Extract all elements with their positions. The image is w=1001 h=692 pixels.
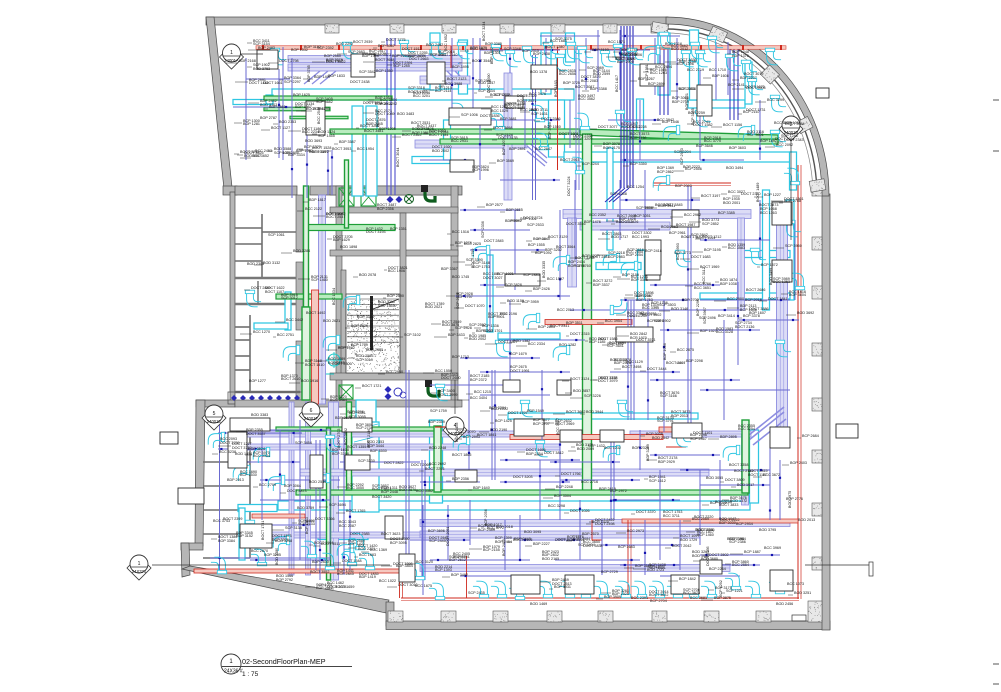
svg-text:BOD 2305: BOD 2305 [247,262,264,266]
svg-text:BOCT 1969: BOCT 1969 [700,265,719,269]
svg-text:SCP 3791: SCP 3791 [657,419,674,423]
svg-text:BDP 2830: BDP 2830 [312,560,329,564]
svg-text:BOD 1898: BOD 1898 [340,245,357,249]
svg-text:BOD 2975: BOD 2975 [788,491,792,508]
svg-text:BOP 2403: BOP 2403 [790,461,807,465]
svg-text:BDP 3854: BDP 3854 [396,564,413,568]
svg-text:BOP 2054: BOP 2054 [626,253,643,257]
svg-text:BDP 2570: BDP 2570 [582,532,599,536]
svg-text:BCP 3414: BCP 3414 [718,314,735,318]
svg-text:DOCT 2228: DOCT 2228 [627,125,647,129]
svg-text:24001F: 24001F [304,416,319,421]
svg-text:SCP 2533: SCP 2533 [527,223,544,227]
svg-text:BOD 3344: BOD 3344 [567,538,584,542]
svg-text:BCP 2707: BCP 2707 [533,422,550,426]
svg-text:SCP 2838: SCP 2838 [636,206,653,210]
svg-text:BCC 3651: BCC 3651 [694,286,711,290]
svg-text:DOCT 3809: DOCT 3809 [725,478,745,482]
svg-text:SCP 1321: SCP 1321 [649,566,666,570]
svg-text:DOCT 3715: DOCT 3715 [232,446,252,450]
svg-text:DOCT 3203: DOCT 3203 [513,475,533,479]
svg-text:BOP 2792: BOP 2792 [276,578,293,582]
svg-text:BOD 3146: BOD 3146 [671,307,688,311]
svg-text:BOP 2159: BOP 2159 [622,273,639,277]
svg-text:SCP 2496: SCP 2496 [699,316,716,320]
svg-text:SCP 2983: SCP 2983 [608,255,625,259]
svg-text:DOCT 3873: DOCT 3873 [287,489,307,493]
svg-text:BOP 2296: BOP 2296 [696,299,700,316]
svg-text:BCP 2972: BCP 2972 [610,489,627,493]
svg-text:BCP 1351: BCP 1351 [390,227,407,231]
svg-text:BCC 2316: BCC 2316 [665,42,682,46]
svg-text:BCC 2352: BCC 2352 [589,213,606,217]
svg-text:BOCT 2408: BOCT 2408 [455,423,459,442]
svg-text:BDP 3030: BDP 3030 [719,521,736,525]
svg-text:BCC 1906: BCC 1906 [388,269,405,273]
svg-text:DOCT 3537: DOCT 3537 [246,432,266,436]
svg-text:BCC 2847: BCC 2847 [535,147,552,151]
svg-text:BDP 1375: BDP 1375 [732,54,749,58]
svg-text:BCC 3201: BCC 3201 [413,94,430,98]
svg-text:BCP 2890: BCP 2890 [648,82,665,86]
svg-text:BDP 1817: BDP 1817 [309,198,326,202]
svg-text:BOCT 3873: BOCT 3873 [759,203,778,207]
svg-text:DOCT 3370: DOCT 3370 [636,510,656,514]
svg-text:BOD 1282: BOD 1282 [559,343,576,347]
svg-text:BOCT 2703: BOCT 2703 [337,429,341,448]
svg-text:DOCT 1414: DOCT 1414 [249,81,269,85]
svg-text:DOCT 2586: DOCT 2586 [541,117,561,121]
svg-text:BDP 1038: BDP 1038 [720,282,737,286]
svg-text:BCP 2418: BCP 2418 [645,249,662,253]
svg-text:BCP 2018: BCP 2018 [496,525,513,529]
svg-text:BDP 3655: BDP 3655 [506,208,523,212]
svg-text:DOCT 1673: DOCT 1673 [745,85,765,89]
svg-text:BOD 2353: BOD 2353 [279,120,296,124]
svg-text:BOCT 2903: BOCT 2903 [560,158,579,162]
svg-text:BOCT 3358: BOCT 3358 [729,463,748,467]
svg-text:BOD 2599: BOD 2599 [593,72,610,76]
svg-text:BCP 1092: BCP 1092 [535,251,552,255]
svg-text:BCP 3681: BCP 3681 [500,117,517,121]
svg-text:6: 6 [310,408,313,414]
svg-text:BOCT 2686: BOCT 2686 [746,288,765,292]
svg-text:BOCT 2939: BOCT 2939 [353,40,372,44]
svg-text:SCP 2435: SCP 2435 [468,591,485,595]
svg-text:BOP 3840: BOP 3840 [533,237,550,241]
svg-text:DOCT 3166: DOCT 3166 [706,546,710,566]
svg-text:BDP 2295: BDP 2295 [392,54,409,58]
svg-text:BOP 2483: BOP 2483 [258,46,275,50]
svg-text:DOCT 2309: DOCT 2309 [332,362,352,366]
svg-text:BDP 3433: BDP 3433 [448,333,465,337]
svg-text:BCC 1263: BCC 1263 [650,71,667,75]
svg-text:SCP 1061: SCP 1061 [268,233,285,237]
svg-text:BDP 3388: BDP 3388 [590,87,607,91]
svg-text:1: 1 [229,659,233,665]
svg-text:BCC 2900: BCC 2900 [727,297,744,301]
svg-text:BDP 1527: BDP 1527 [700,329,717,333]
svg-text:BDP 1467: BDP 1467 [490,47,494,64]
svg-text:SCP 1612: SCP 1612 [649,479,666,483]
svg-text:SCP 2734: SCP 2734 [356,426,373,430]
svg-text:BOCT 1721: BOCT 1721 [362,384,381,388]
svg-text:BCP 3385: BCP 3385 [718,211,735,215]
svg-text:BCC 1163: BCC 1163 [760,211,777,215]
svg-text:BOP 3511: BOP 3511 [566,321,583,325]
svg-text:BCC 1993: BCC 1993 [632,235,649,239]
svg-text:BCC 3404: BCC 3404 [470,396,487,400]
svg-text:DOCT 3571: DOCT 3571 [636,338,656,342]
svg-text:BOP 2356: BOP 2356 [452,477,469,481]
svg-text:BCC 2391: BCC 2391 [631,596,648,600]
svg-text:SCP 2852: SCP 2852 [702,222,719,226]
svg-text:BOD 3494: BOD 3494 [726,166,743,170]
svg-text:DOCT 2343: DOCT 2343 [784,138,804,142]
svg-text:BDP 1967: BDP 1967 [295,105,312,109]
svg-text:BOCT 3698: BOCT 3698 [493,126,512,130]
svg-text:BDP 2093: BDP 2093 [675,184,692,188]
svg-text:SCP 2445: SCP 2445 [429,539,446,543]
svg-text:BOD 2292: BOD 2292 [336,42,353,46]
svg-text:BCC 3254: BCC 3254 [738,427,755,431]
svg-text:DOCT 3010: DOCT 3010 [398,583,418,587]
svg-text:BOCT 3548: BOCT 3548 [472,59,491,63]
svg-text:SCP 2336: SCP 2336 [481,221,485,238]
svg-text:BOCT 3318: BOCT 3318 [575,256,594,260]
svg-text:DOCT 3077: DOCT 3077 [598,125,618,129]
svg-text:BCC 3050: BCC 3050 [347,486,364,490]
svg-text:BCC 1254: BCC 1254 [627,185,644,189]
svg-text:BCC 2694: BCC 2694 [655,65,672,69]
svg-text:BCC 1270: BCC 1270 [253,330,270,334]
svg-text:BCP 3095: BCP 3095 [390,541,407,545]
svg-text:BCP 2684: BCP 2684 [802,434,819,438]
svg-text:DOCT 2315: DOCT 2315 [570,332,590,336]
svg-text:BCC 2417: BCC 2417 [326,59,343,63]
svg-text:SCP 3296: SCP 3296 [347,410,364,414]
svg-text:BOP 3569: BOP 3569 [497,159,514,163]
svg-text:BCP 2155: BCP 2155 [483,548,500,552]
svg-text:BCP 3367: BCP 3367 [378,44,395,48]
svg-text:BOD 1729: BOD 1729 [680,538,697,542]
svg-text:BCC 1534: BCC 1534 [332,288,336,305]
svg-text:DOCT 2650: DOCT 2650 [441,376,461,380]
svg-text:DOCT 2438: DOCT 2438 [350,80,370,84]
svg-text:BCC 1073: BCC 1073 [787,582,804,586]
svg-text:BOP 2803: BOP 2803 [538,325,555,329]
svg-text:BCP 3959: BCP 3959 [522,300,539,304]
svg-text:BOD 2222: BOD 2222 [491,407,508,411]
svg-text:BCP 2356: BCP 2356 [377,207,394,211]
svg-text:BOCT 3999: BOCT 3999 [438,393,457,397]
svg-text:BOCT 2220: BOCT 2220 [694,515,713,519]
svg-text:BOCT 1355: BOCT 1355 [347,445,366,449]
svg-text:SCP 1334: SCP 1334 [478,89,495,93]
svg-text:BCC 1710: BCC 1710 [709,68,726,72]
svg-text:DOCT 1797: DOCT 1797 [508,411,528,415]
svg-text:SCP 3828: SCP 3828 [505,283,522,287]
svg-text:BCC 3682: BCC 3682 [344,428,348,445]
svg-text:BDP 3700: BDP 3700 [476,329,493,333]
svg-text:SCP 1285: SCP 1285 [393,64,410,68]
svg-text:BCC 1369: BCC 1369 [370,548,387,552]
svg-text:SCP 1460: SCP 1460 [311,278,328,282]
svg-text:SCP 2801: SCP 2801 [430,53,447,57]
svg-text:BOP 3064: BOP 3064 [284,484,301,488]
svg-text:BOP 1277: BOP 1277 [249,379,266,383]
svg-text:BCP 1550: BCP 1550 [544,125,561,129]
svg-text:BOP 2175: BOP 2175 [603,146,620,150]
svg-text:BDP 3251: BDP 3251 [640,312,657,316]
svg-text:1 : 75: 1 : 75 [242,671,259,678]
svg-text:BCP 2934: BCP 2934 [736,522,753,526]
svg-text:DOCT 3838: DOCT 3838 [583,544,603,548]
svg-text:SCP 2297: SCP 2297 [284,80,301,84]
svg-text:BCC 2973: BCC 2973 [627,529,644,533]
svg-text:BCC 2122: BCC 2122 [305,207,322,211]
svg-text:BCP 3768: BCP 3768 [332,452,349,456]
svg-text:BOD 2536: BOD 2536 [309,480,326,484]
svg-text:BCC 2171: BCC 2171 [375,109,392,113]
svg-text:BOCT 1280: BOCT 1280 [545,45,564,49]
svg-text:BOP 3285: BOP 3285 [715,500,732,504]
svg-text:BDP 1549: BDP 1549 [527,409,544,413]
svg-text:BDP 3530: BDP 3530 [370,449,387,453]
svg-text:BOCT 1312: BOCT 1312 [490,93,509,97]
svg-text:SCP 1381: SCP 1381 [645,64,649,81]
svg-text:BOD 3132: BOD 3132 [263,261,280,265]
svg-text:DOCT 2513: DOCT 2513 [552,582,572,586]
svg-text:SCP 1631: SCP 1631 [531,112,548,116]
svg-text:24001E: 24001E [207,419,222,424]
svg-text:BOP 1546: BOP 1546 [662,120,679,124]
svg-text:SCP 2124: SCP 2124 [496,133,513,137]
svg-text:BCP 1425: BCP 1425 [495,419,512,423]
svg-text:SCP 3967: SCP 3967 [703,307,707,324]
svg-text:BDP 2799: BDP 2799 [672,100,689,104]
svg-text:BOCT 2761: BOCT 2761 [734,469,753,473]
svg-text:BCC 3298: BCC 3298 [548,504,565,508]
svg-text:BDP 2354: BDP 2354 [526,452,543,456]
svg-text:BCP 1021: BCP 1021 [497,272,514,276]
svg-text:BCC 2554: BCC 2554 [732,563,749,567]
svg-text:24X36 #: 24X36 # [224,669,243,675]
svg-text:BDP 3678: BDP 3678 [335,416,352,420]
svg-text:BOCT 1156: BOCT 1156 [723,123,742,127]
svg-text:24X371: 24X371 [132,569,147,574]
svg-text:BDP 1497: BDP 1497 [314,75,331,79]
svg-text:BCC 1417: BCC 1417 [615,75,619,92]
svg-text:BCC 2196: BCC 2196 [500,312,517,316]
svg-text:BOP 2590: BOP 2590 [387,294,404,298]
svg-text:BCC 3673: BCC 3673 [683,591,700,595]
svg-text:SCP 3348: SCP 3348 [504,47,521,51]
svg-text:BDP 1301: BDP 1301 [484,51,501,55]
svg-text:BCP 3696: BCP 3696 [428,529,445,533]
svg-text:SCP 3012: SCP 3012 [281,296,298,300]
svg-text:BOCT 2969: BOCT 2969 [555,422,574,426]
svg-text:BCC 3856: BCC 3856 [679,87,696,91]
svg-text:SCP 1759: SCP 1759 [430,409,447,413]
svg-text:BDP 3785: BDP 3785 [307,65,311,82]
svg-text:BOP 2612: BOP 2612 [449,558,466,562]
svg-text:BOCT 3197: BOCT 3197 [701,194,720,198]
svg-text:DOCT 1548: DOCT 1548 [342,559,362,563]
svg-text:SCP 1432: SCP 1432 [588,444,605,448]
svg-text:BDP 1576: BDP 1576 [455,241,472,245]
svg-text:BCP 3350: BCP 3350 [630,162,647,166]
svg-text:BOCT 2123: BOCT 2123 [447,77,466,81]
svg-text:BOD 2198: BOD 2198 [727,537,744,541]
svg-text:BCP 1530: BCP 1530 [240,473,257,477]
svg-text:BCC 3583: BCC 3583 [728,246,745,250]
svg-text:SCP 3950: SCP 3950 [785,244,802,248]
svg-text:SCP 1753: SCP 1753 [473,265,490,269]
svg-text:BOCT 3234: BOCT 3234 [506,106,525,110]
svg-text:SCP 3138: SCP 3138 [285,526,302,530]
svg-text:BOD 3944: BOD 3944 [586,410,603,414]
svg-text:BCP 2141: BCP 2141 [728,83,745,87]
svg-text:SCP 3503: SCP 3503 [659,303,676,307]
svg-text:BCC 3120: BCC 3120 [416,560,433,564]
svg-text:BCC 1952: BCC 1952 [444,34,448,51]
svg-text:BOP 3504: BOP 3504 [554,494,571,498]
svg-text:BDP 3537: BDP 3537 [593,283,610,287]
svg-text:DOCT 1841: DOCT 1841 [768,297,788,301]
svg-text:BOD 2248: BOD 2248 [429,446,446,450]
svg-text:BCC 3128: BCC 3128 [716,330,733,334]
svg-text:DOCT 3366: DOCT 3366 [315,517,335,521]
svg-text:BOD 1469: BOD 1469 [530,602,547,606]
svg-text:BOCT 1127: BOCT 1127 [271,126,290,130]
svg-text:BOD 3284: BOD 3284 [293,249,310,253]
svg-text:BCP 3495: BCP 3495 [452,65,469,69]
svg-text:BCC 1022: BCC 1022 [379,579,396,583]
svg-text:BOP 2914: BOP 2914 [375,102,392,106]
svg-text:BOD 2078: BOD 2078 [359,273,376,277]
svg-text:BCC 2092: BCC 2092 [776,143,793,147]
svg-text:SCP 2358: SCP 2358 [610,192,627,196]
svg-text:SCP 3542: SCP 3542 [359,70,376,74]
svg-text:DOCT 2585: DOCT 2585 [350,532,370,536]
svg-text:5: 5 [213,411,216,417]
svg-text:BOD 2857: BOD 2857 [573,389,590,393]
svg-text:SCP 3001: SCP 3001 [747,133,764,137]
svg-text:BOP 1295: BOP 1295 [313,107,330,111]
svg-text:BOCT 3622: BOCT 3622 [649,593,668,597]
svg-text:DOCT 2340: DOCT 2340 [741,192,761,196]
svg-text:DOCT 3193: DOCT 3193 [366,230,386,234]
svg-text:BOCT 3124: BOCT 3124 [570,377,589,381]
svg-text:DOCT 3027: DOCT 3027 [483,276,503,280]
svg-text:BOP 2438: BOP 2438 [533,52,550,56]
svg-text:BDP 2227: BDP 2227 [533,542,550,546]
svg-text:BOP 2448: BOP 2448 [381,490,398,494]
svg-text:BCC 3113: BCC 3113 [616,220,633,224]
svg-text:BOCT 1865: BOCT 1865 [452,453,471,457]
svg-text:DOCT 1582: DOCT 1582 [693,123,713,127]
svg-text:BDP 2900: BDP 2900 [617,60,634,64]
svg-text:BCP 1683: BCP 1683 [618,545,635,549]
svg-text:BDP 1608: BDP 1608 [712,74,729,78]
svg-text:DOCT 1586: DOCT 1586 [598,337,618,341]
svg-text:BOD 3335: BOD 3335 [542,261,546,278]
svg-text:BDP 2298: BDP 2298 [686,359,703,363]
svg-text:1: 1 [230,50,233,56]
svg-text:DOCT 1512: DOCT 1512 [402,47,422,51]
svg-text:BOCT 3481: BOCT 3481 [364,129,383,133]
svg-text:BOP 3492: BOP 3492 [451,573,468,577]
svg-text:BOD 2542: BOD 2542 [652,436,669,440]
svg-text:BCC 2719: BCC 2719 [687,68,704,72]
svg-text:BOP 3603: BOP 3603 [729,146,746,150]
svg-text:BCP 2016: BCP 2016 [745,298,762,302]
svg-text:SCP 1757: SCP 1757 [456,295,473,299]
svg-text:BCP 3646: BCP 3646 [696,144,713,148]
svg-text:BCC 3562: BCC 3562 [578,97,595,101]
svg-text:BCC 3464: BCC 3464 [330,398,347,402]
svg-text:BCC 3238: BCC 3238 [219,450,236,454]
svg-text:BCP 2949: BCP 2949 [478,528,495,532]
svg-text:BDP 2139: BDP 2139 [679,60,696,64]
svg-text:BOD 2621: BOD 2621 [323,319,340,323]
svg-text:SCP 3226: SCP 3226 [584,394,601,398]
svg-text:SCP 2428: SCP 2428 [455,326,472,330]
svg-text:BCP 1996: BCP 1996 [472,168,489,172]
svg-text:BCP 3051: BCP 3051 [634,214,651,218]
svg-text:BCP 1460: BCP 1460 [697,533,714,537]
svg-text:BDP 2443: BDP 2443 [514,537,531,541]
svg-text:BCC 2875: BCC 2875 [677,348,694,352]
svg-text:DOCT 3444: DOCT 3444 [647,367,667,371]
svg-text:DOCT 1766: DOCT 1766 [561,472,581,476]
svg-text:DOCT 2798: DOCT 2798 [279,59,299,63]
svg-text:BOD 2002: BOD 2002 [469,337,486,341]
svg-text:BDP 2237: BDP 2237 [740,76,757,80]
svg-text:BOP 3604: BOP 3604 [789,293,806,297]
svg-text:BCC 3672: BCC 3672 [763,473,780,477]
svg-text:BDP 1066: BDP 1066 [663,343,667,360]
svg-text:DOCT 3845: DOCT 3845 [663,203,683,207]
svg-text:DOCT 3502: DOCT 3502 [709,553,729,557]
svg-text:1: 1 [138,561,141,567]
svg-text:SCP 3019: SCP 3019 [356,358,373,362]
svg-text:SCP 3375: SCP 3375 [555,37,572,41]
svg-text:BOP 3725: BOP 3725 [563,81,580,85]
svg-text:BCC 3954: BCC 3954 [605,319,622,323]
svg-text:BDP 1136: BDP 1136 [630,136,646,140]
svg-text:BOD 3693: BOD 3693 [305,139,322,143]
svg-text:BOD 2190: BOD 2190 [490,428,507,432]
svg-text:BCC 2931: BCC 2931 [451,139,468,143]
svg-text:BOCT 2186: BOCT 2186 [367,429,371,448]
svg-text:BCP 1842: BCP 1842 [679,577,696,581]
svg-text:BOCT 2688: BOCT 2688 [375,58,394,62]
svg-text:BOP 2455: BOP 2455 [502,539,506,556]
svg-text:BCC 2656: BCC 2656 [559,72,576,76]
svg-text:SCP 1006: SCP 1006 [274,151,291,155]
svg-text:SCP 1679: SCP 1679 [510,352,527,356]
svg-text:BDP 1923: BDP 1923 [612,592,629,596]
svg-text:BCP 1769: BCP 1769 [351,343,368,347]
svg-text:BCC 2083: BCC 2083 [581,79,598,83]
svg-text:BCP 1887: BCP 1887 [744,550,761,554]
svg-text:BDP 1629: BDP 1629 [333,238,350,242]
svg-text:BOP 1422: BOP 1422 [348,542,365,546]
svg-text:BCC 2962: BCC 2962 [684,213,701,217]
svg-text:BOCT 2863: BOCT 2863 [602,232,621,236]
